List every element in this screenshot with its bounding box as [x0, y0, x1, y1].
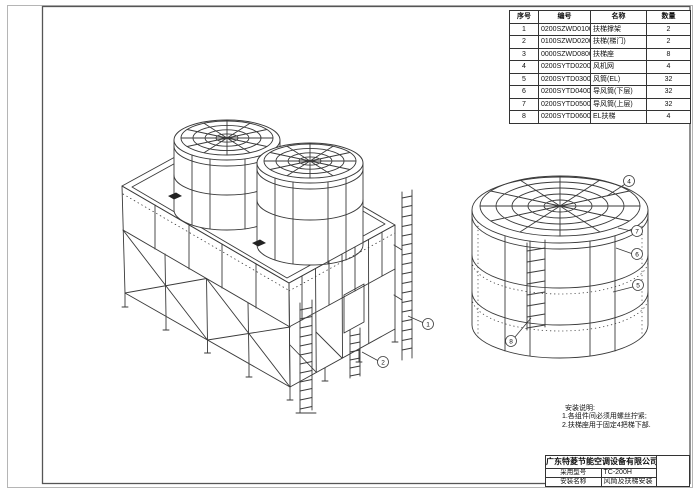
svg-text:5: 5 — [636, 282, 640, 289]
detail-view-fan-stack — [472, 176, 648, 358]
part-code: 0200SYTD0400 — [539, 86, 591, 99]
part-qty: 32 — [647, 73, 691, 86]
notes-line-1: 1.各组件间必须用螺丝拧紧; — [562, 413, 651, 421]
install-name-value: 风筒及扶梯安装 — [601, 478, 657, 487]
table-row: 60200SYTD0400导风筒(下层)32 — [510, 86, 691, 99]
ladder-right-tall — [394, 190, 412, 360]
svg-text:7: 7 — [635, 228, 639, 235]
ladder-front-left — [296, 300, 316, 413]
part-seq: 2 — [510, 36, 539, 49]
svg-text:4: 4 — [627, 178, 631, 185]
part-seq: 4 — [510, 61, 539, 74]
part-seq: 8 — [510, 111, 539, 124]
part-qty: 2 — [647, 36, 691, 49]
part-code: 0200SYTD0300 — [539, 73, 591, 86]
part-qty: 4 — [647, 61, 691, 74]
part-code: 0100SZWD0200 — [539, 36, 591, 49]
table-row: 20100SZWD0200扶梯(梯门)2 — [510, 36, 691, 49]
part-name: 扶梯(梯门) — [591, 36, 647, 49]
install-name-label: 安装名称 — [546, 478, 602, 487]
notes-line-2: 2.扶梯座用于固定4把梯下部. — [562, 422, 651, 430]
part-seq: 3 — [510, 48, 539, 61]
callout-balloon-2: 2 — [362, 352, 389, 368]
fan-guard-grid-detail — [480, 176, 640, 236]
part-name: 风机网 — [591, 61, 647, 74]
part-name: EL扶梯 — [591, 111, 647, 124]
part-seq: 1 — [510, 23, 539, 36]
table-row: 80200SYTD0600EL扶梯4 — [510, 111, 691, 124]
part-name: 扶梯撑架 — [591, 23, 647, 36]
part-qty: 2 — [647, 23, 691, 36]
table-row: 70200SYTD0500导风筒(上层)32 — [510, 98, 691, 111]
fan-guard-grid-1 — [181, 121, 273, 155]
model-value: TC-200H — [601, 469, 657, 478]
parts-table: 序号 编号 名称 数量 10200SZWD0100扶梯撑架2 20100SZWD… — [509, 10, 691, 124]
drawing-sheet: 1 2 4 7 6 5 8 序号 编号 名称 数量 — [0, 0, 700, 495]
svg-text:6: 6 — [635, 251, 639, 258]
table-row: 40200SYTD0200风机网4 — [510, 61, 691, 74]
table-row: 10200SZWD0100扶梯撑架2 — [510, 23, 691, 36]
part-code: 0000SZWD0800 — [539, 48, 591, 61]
main-isometric-view — [122, 120, 412, 413]
title-block-empty-cell — [657, 456, 690, 487]
fan-guard-grid-2 — [264, 144, 356, 178]
part-qty: 32 — [647, 98, 691, 111]
part-seq: 7 — [510, 98, 539, 111]
part-qty: 8 — [647, 48, 691, 61]
part-qty: 4 — [647, 111, 691, 124]
part-code: 0200SYTD0500 — [539, 98, 591, 111]
title-block: 广东特菱节能空调设备有限公司 采用型号 TC-200H 安装名称 风筒及扶梯安装 — [545, 455, 690, 487]
part-name: 扶梯座 — [591, 48, 647, 61]
part-name: 风筒(EL) — [591, 73, 647, 86]
col-header-qty: 数量 — [647, 11, 691, 24]
table-row: 50200SYTD0300风筒(EL)32 — [510, 73, 691, 86]
svg-text:8: 8 — [509, 338, 513, 345]
part-code: 0200SYTD0600 — [539, 111, 591, 124]
svg-text:2: 2 — [381, 359, 385, 366]
part-seq: 6 — [510, 86, 539, 99]
company-name: 广东特菱节能空调设备有限公司 — [546, 456, 657, 469]
table-row: 30000SZWD0800扶梯座8 — [510, 48, 691, 61]
installation-notes: 安装说明: 1.各组件间必须用螺丝拧紧; 2.扶梯座用于固定4把梯下部. — [562, 405, 651, 430]
part-seq: 5 — [510, 73, 539, 86]
part-qty: 32 — [647, 86, 691, 99]
col-header-code: 编号 — [539, 11, 591, 24]
model-label: 采用型号 — [546, 469, 602, 478]
col-header-name: 名称 — [591, 11, 647, 24]
col-header-seq: 序号 — [510, 11, 539, 24]
part-code: 0200SZWD0100 — [539, 23, 591, 36]
fan-stack-2 — [257, 143, 363, 265]
part-code: 0200SYTD0200 — [539, 61, 591, 74]
part-name: 导风筒(上层) — [591, 98, 647, 111]
svg-text:1: 1 — [426, 321, 430, 328]
part-name: 导风筒(下层) — [591, 86, 647, 99]
parts-table-header: 序号 编号 名称 数量 — [510, 11, 691, 24]
